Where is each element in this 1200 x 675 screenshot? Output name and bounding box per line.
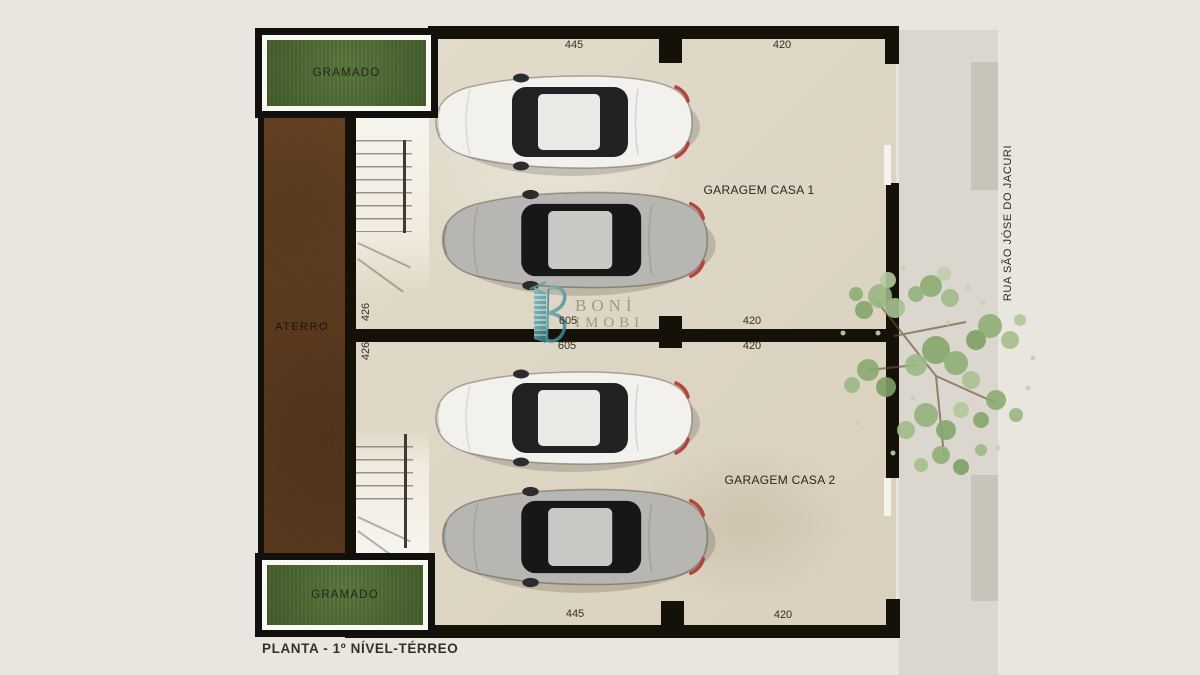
dim-mid-below-left: 605 xyxy=(558,340,576,352)
garage1-label: GARAGEM CASA 1 xyxy=(704,183,815,197)
driveway-ramp-garage1 xyxy=(971,62,998,190)
lawn-area-top: GRAMADO xyxy=(255,28,438,118)
car-white-garage1 xyxy=(424,63,704,181)
lawn-frame: GRAMADO xyxy=(262,35,431,111)
staircase-garage1 xyxy=(356,112,429,290)
dim-mid-above-right: 420 xyxy=(743,315,761,327)
tree xyxy=(798,238,1063,498)
dim-bottom-right: 420 xyxy=(774,609,792,621)
dim-bottom-left: 445 xyxy=(566,608,584,620)
car-silver-garage2 xyxy=(430,476,720,598)
lawn-bottom-label: GRAMADO xyxy=(311,589,379,601)
stair-railing xyxy=(403,140,406,233)
dim-side-garage1: 426 xyxy=(360,303,372,321)
dim-mid-above-left: 605 xyxy=(559,315,577,327)
winder-step-line xyxy=(358,258,404,292)
dim-mid-below-right: 420 xyxy=(743,340,761,352)
wall-top xyxy=(428,26,899,39)
grass-texture: GRAMADO xyxy=(267,565,423,625)
brand-name-line1: BONİ xyxy=(575,296,637,316)
brand-logo-icon xyxy=(520,280,568,348)
grass-texture: GRAMADO xyxy=(267,40,426,106)
earth-fill-label: ATERRO xyxy=(275,321,329,333)
car-white-garage2 xyxy=(424,359,704,477)
winder-step-line xyxy=(358,516,411,542)
dim-top-right: 420 xyxy=(773,39,791,51)
floor-plan-rendering: RUA SÃO JÓSE DO JACURI GRAMADO xyxy=(0,0,1200,675)
brand-watermark: BONİ IMOBI xyxy=(520,280,690,352)
dim-side-garage2: 426 xyxy=(360,342,372,360)
earth-fill-area xyxy=(258,112,352,580)
garage1-gate xyxy=(884,145,891,185)
wall-right-top-corner xyxy=(885,26,899,64)
lawn-frame: GRAMADO xyxy=(262,560,428,630)
lawn-top-label: GRAMADO xyxy=(313,67,381,79)
dim-top-left: 445 xyxy=(565,39,583,51)
plan-title: PLANTA - 1º NÍVEL-TÉRREO xyxy=(262,641,458,656)
brand-name-line2: IMOBI xyxy=(575,315,644,332)
wall-bottom-divider xyxy=(661,601,684,627)
lawn-area-bottom: GRAMADO xyxy=(255,553,435,637)
stair-railing xyxy=(404,434,407,548)
staircase-garage2 xyxy=(356,428,429,554)
wall-top-divider xyxy=(659,39,682,63)
